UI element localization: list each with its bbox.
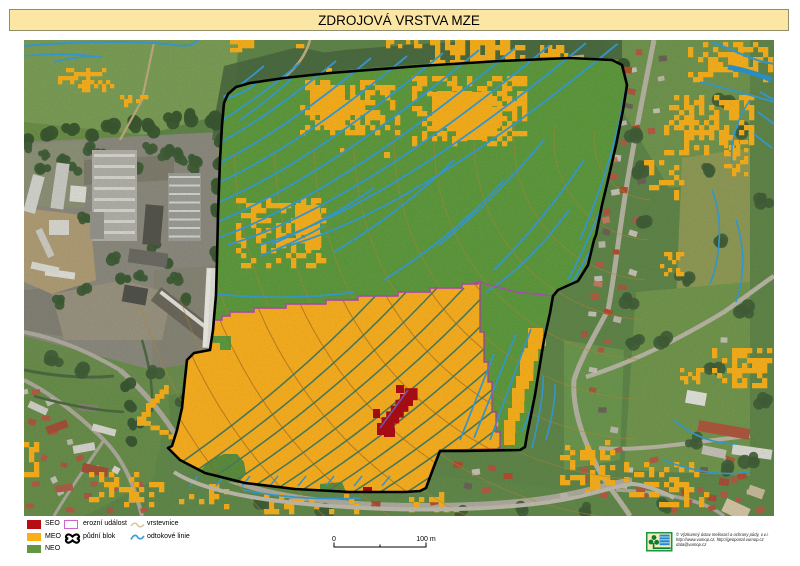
svg-text:0: 0 [332,536,336,543]
svg-text:100 m: 100 m [416,536,436,543]
